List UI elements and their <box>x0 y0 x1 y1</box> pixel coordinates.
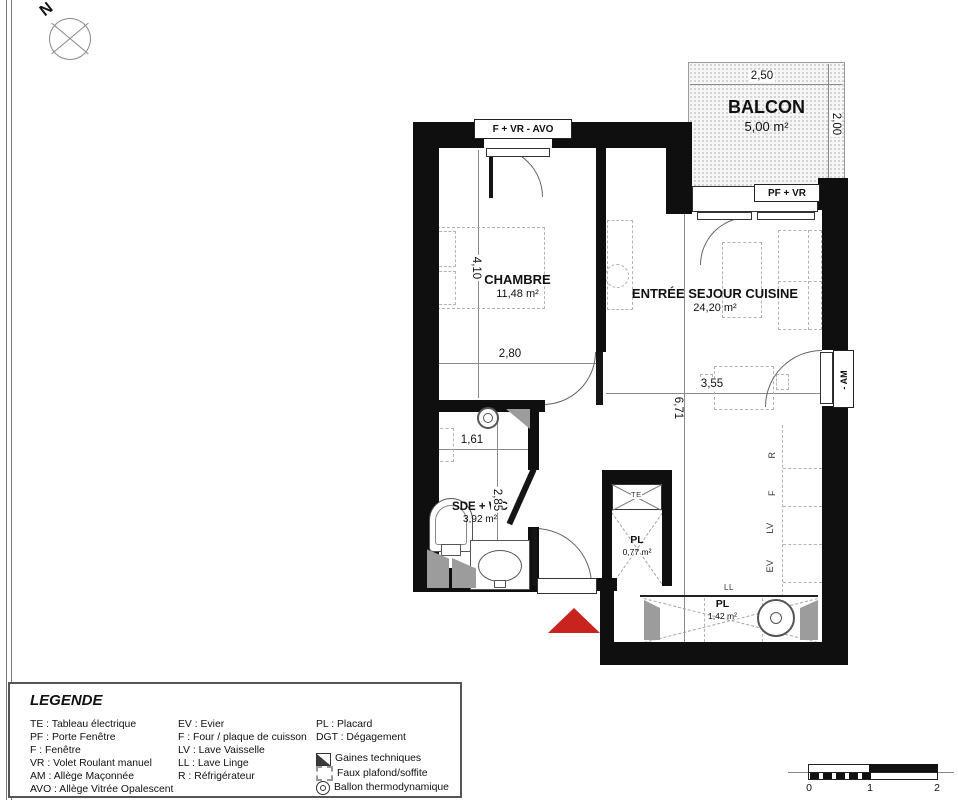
dishwasher-label: LV <box>765 522 775 533</box>
legend-title: LEGENDE <box>30 692 103 709</box>
dimension-line <box>690 84 842 85</box>
legend-item: LL : Lave Linge <box>178 757 307 770</box>
dim-balcony-width: 2,50 <box>749 70 775 82</box>
legend-item: PF : Porte Fenêtre <box>30 731 173 744</box>
window-frame <box>820 352 833 404</box>
scale-bar-tick <box>823 773 832 779</box>
window-swing-arc <box>765 350 822 407</box>
faux-plafond-icon <box>316 766 333 781</box>
electrical-panel-label: TE <box>631 490 642 499</box>
window-label: F + VR - AVO <box>493 124 554 135</box>
wall <box>596 148 606 352</box>
dim-sde-width: 1,61 <box>459 434 485 446</box>
scale-label: 0 <box>806 782 812 794</box>
wall <box>822 406 848 648</box>
scale-label: 1 <box>867 782 873 794</box>
room-name: PL <box>612 534 662 547</box>
room-label-sejour: ENTRÉE SEJOUR CUISINE 24,20 m² <box>615 286 815 316</box>
entrance-door-sill <box>537 578 597 594</box>
legend-item: R : Réfrigérateur <box>178 770 307 783</box>
gaines-techniques-icon <box>316 753 331 766</box>
kitchen-counter-divider <box>783 506 822 507</box>
entrance-arrow-icon <box>548 608 600 633</box>
floorplan-sheet: N BALCON 5,00 m² 2,50 2,00 F + VR - AVO … <box>0 0 958 800</box>
legend-box: LEGENDE TE : Tableau électrique PF : Por… <box>8 682 462 798</box>
door-label: PF + VR <box>768 188 806 199</box>
door-leaf <box>596 352 603 405</box>
ballon-thermodynamique-icon <box>320 785 326 791</box>
room-label-placard-entree: PL 0,77 m² <box>612 534 662 558</box>
legend-item: F : Four / plaque de cuisson <box>178 731 307 744</box>
wall <box>600 642 848 665</box>
sink-label: EV <box>765 559 775 572</box>
room-area: 0,77 m² <box>612 547 662 558</box>
shower-head-icon <box>483 413 493 423</box>
room-label-placard-bas: PL 1,42 m² <box>680 598 765 622</box>
room-area: 24,20 m² <box>615 302 815 316</box>
window-leaf <box>489 150 493 198</box>
room-area: 11,48 m² <box>455 288 580 302</box>
door-label-box: PF + VR <box>754 184 820 202</box>
legend-item: EV : Evier <box>178 718 307 731</box>
washer-label: LL <box>724 583 734 592</box>
scale-bar-tick <box>849 773 858 779</box>
wall <box>602 482 612 586</box>
oven-label: F <box>767 490 777 496</box>
room-area: 3,92 m² <box>435 514 525 527</box>
dim-sejour-width: 3,55 <box>699 378 725 390</box>
window-label-box: F + VR - AVO <box>474 119 572 139</box>
scale-bar-tick <box>836 773 845 779</box>
dim-sejour-length: 6,71 <box>672 395 684 421</box>
dim-balcony-depth: 2,00 <box>830 111 842 137</box>
water-heater-icon <box>770 612 782 624</box>
legend-item: Gaines techniques <box>316 752 449 766</box>
ballon-thermodynamique-icon <box>316 781 330 795</box>
legend-column: PL : Placard DGT : Dégagement Gaines tec… <box>316 718 449 795</box>
wall <box>662 482 672 586</box>
washbasin-tap <box>441 544 461 556</box>
window-sill <box>486 148 550 157</box>
wall <box>602 470 672 484</box>
sofa-outline <box>778 281 822 282</box>
legend-item: F : Fenêtre <box>30 744 173 757</box>
wc-flush <box>494 580 506 588</box>
kitchen-counter-edge <box>782 425 783 597</box>
legend-item: Ballon thermodynamique <box>316 781 449 795</box>
scale-label: 2 <box>934 782 940 794</box>
sheet-border <box>6 0 7 800</box>
window-label: - AM <box>839 370 849 389</box>
dim-sde-length: 2,85 <box>491 487 503 513</box>
sheet-border <box>11 0 12 800</box>
legend-item: Faux plafond/soffite <box>316 766 449 781</box>
door-swing-arc <box>543 352 596 405</box>
kitchen-counter-divider <box>783 582 822 583</box>
kitchen-counter-divider <box>783 544 822 545</box>
technical-duct <box>644 600 660 640</box>
dimension-line <box>684 214 685 642</box>
wall <box>600 588 614 646</box>
legend-item: AVO : Allège Vitrée Opalescent <box>30 783 173 796</box>
dim-chambre-width: 2,80 <box>497 348 523 360</box>
room-label-sde: SDE + WC 3,92 m² <box>435 500 525 527</box>
legend-column: EV : Evier F : Four / plaque de cuisson … <box>178 718 307 783</box>
kitchen-counter-divider <box>783 468 822 469</box>
room-area: 1,42 m² <box>680 611 765 622</box>
scale-bar-tick <box>810 773 819 779</box>
dim-chambre-length: 4,10 <box>470 255 482 281</box>
wall <box>818 178 848 210</box>
legend-item: LV : Lave Vaisselle <box>178 744 307 757</box>
window-label-box: - AM <box>833 350 854 408</box>
room-name: SDE + WC <box>435 500 525 514</box>
wall <box>666 148 692 214</box>
legend-column: TE : Tableau électrique PF : Porte Fenêt… <box>30 718 173 796</box>
window-sill <box>757 212 815 220</box>
legend-item: VR : Volet Roulant manuel <box>30 757 173 770</box>
room-area: 5,00 m² <box>688 119 845 135</box>
technical-duct <box>800 600 818 640</box>
legend-item: TE : Tableau électrique <box>30 718 173 731</box>
legend-item: PL : Placard <box>316 718 449 731</box>
compass-north-label: N <box>37 0 57 21</box>
door-swing-arc <box>535 528 592 585</box>
wc-bowl <box>478 550 522 582</box>
placard-top-line <box>640 595 818 597</box>
scale-bar-tick <box>862 773 871 779</box>
room-label-balcon: BALCON 5,00 m² <box>688 96 845 135</box>
legend-item: AM : Allège Maçonnée <box>30 770 173 783</box>
room-name: ENTRÉE SEJOUR CUISINE <box>615 286 815 302</box>
chair-outline <box>605 264 629 288</box>
wall <box>822 210 848 350</box>
room-name: PL <box>680 598 765 611</box>
window-sill <box>697 212 752 220</box>
fridge-label: R <box>767 452 777 459</box>
technical-duct <box>506 409 530 429</box>
door-swing-arc <box>700 217 748 265</box>
room-name: BALCON <box>688 96 845 119</box>
legend-item: DGT : Dégagement <box>316 731 449 744</box>
